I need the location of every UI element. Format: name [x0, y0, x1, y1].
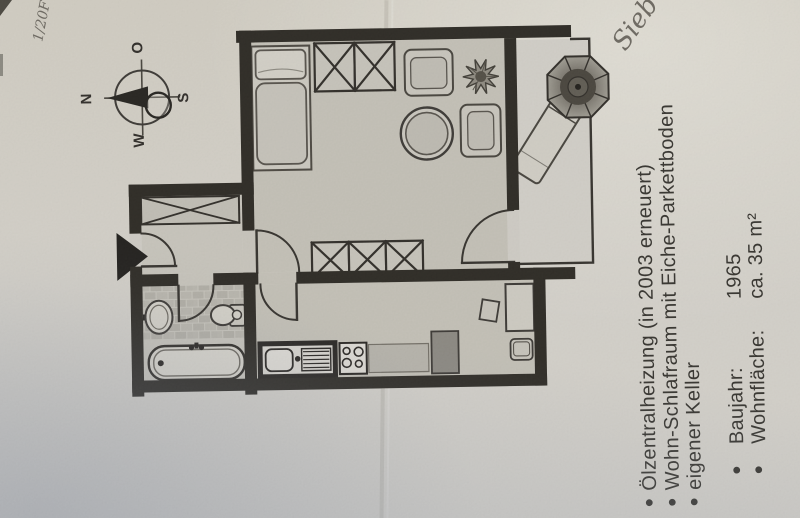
photo-grain	[0, 0, 800, 518]
scanned-floorplan-photo: N O S W Ölzentralheizung (in 2003 erneue…	[0, 0, 800, 518]
